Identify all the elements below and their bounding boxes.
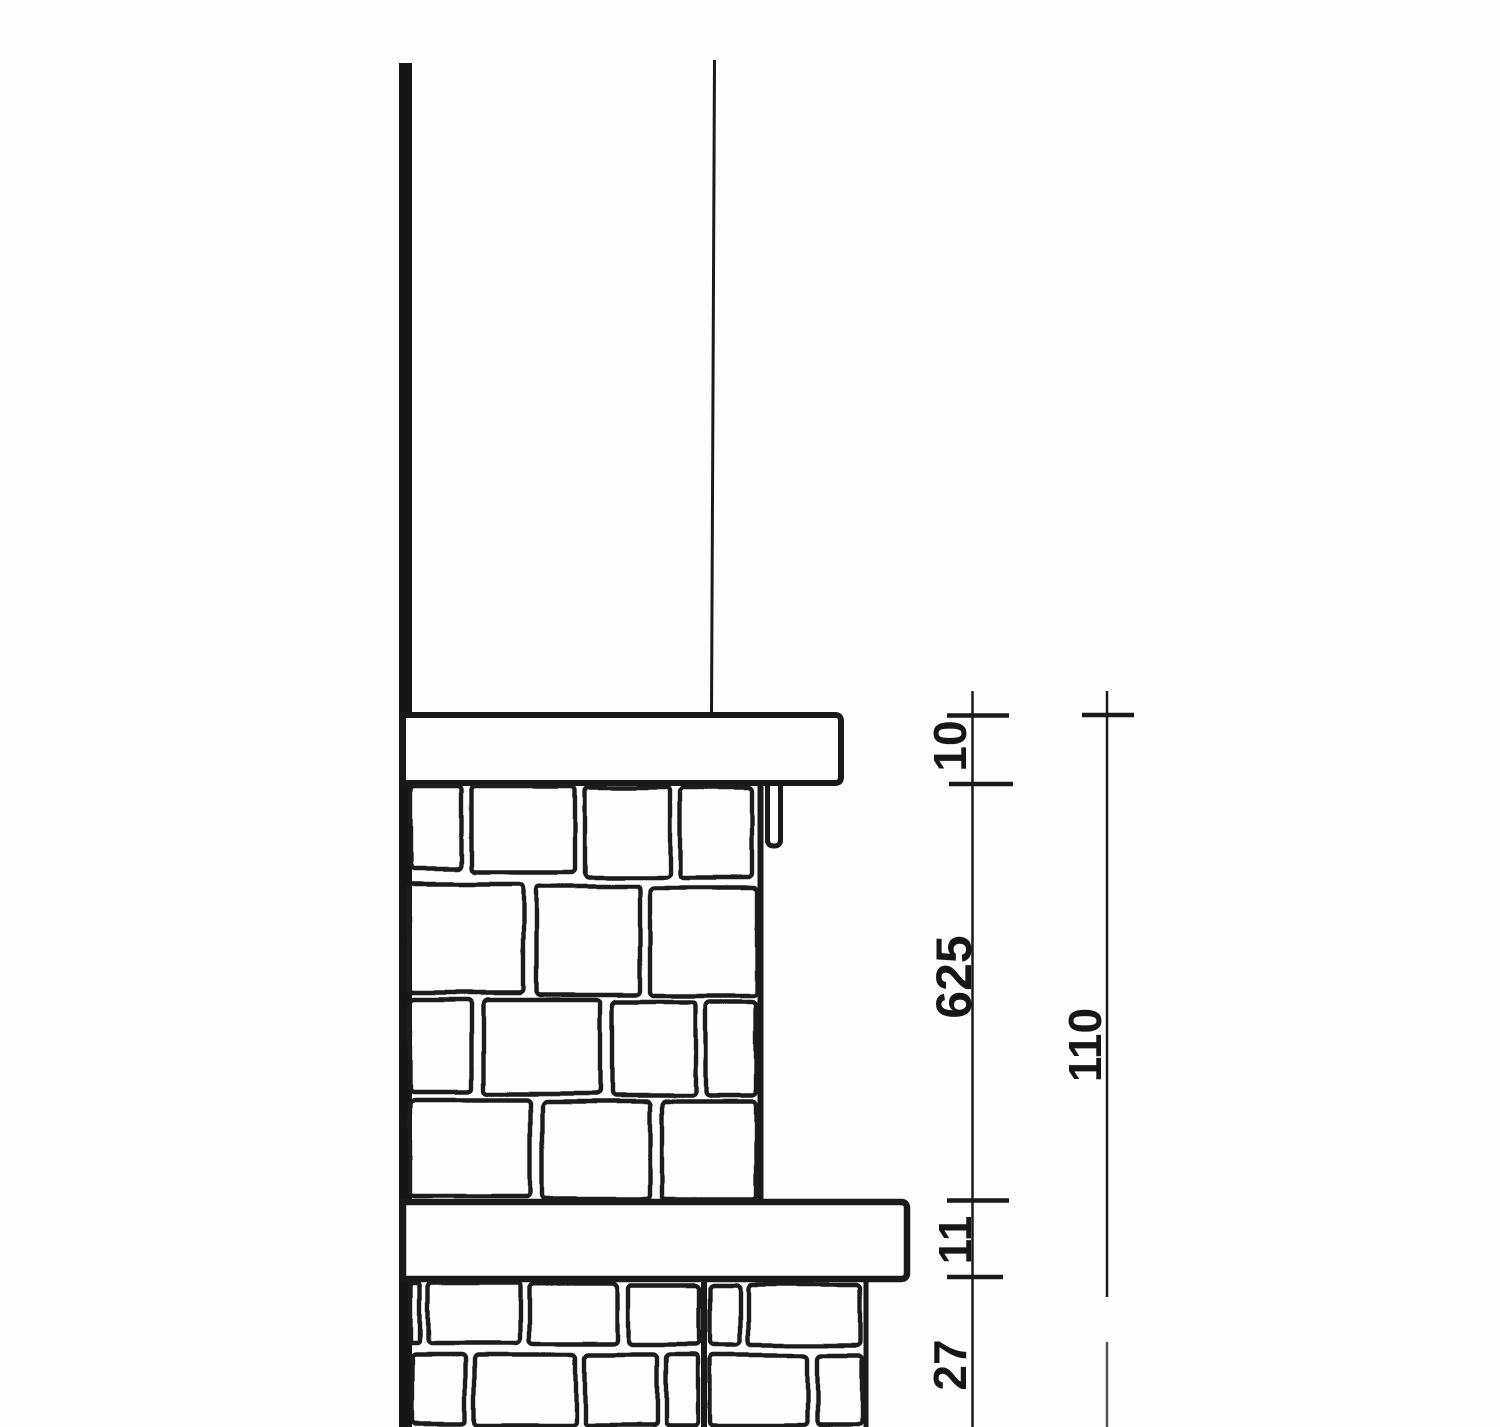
svg-text:11: 11	[929, 1216, 981, 1265]
svg-text:27: 27	[924, 1339, 976, 1390]
svg-text:110: 110	[1059, 1008, 1111, 1082]
svg-text:625: 625	[926, 935, 982, 1018]
svg-text:10: 10	[924, 720, 976, 771]
